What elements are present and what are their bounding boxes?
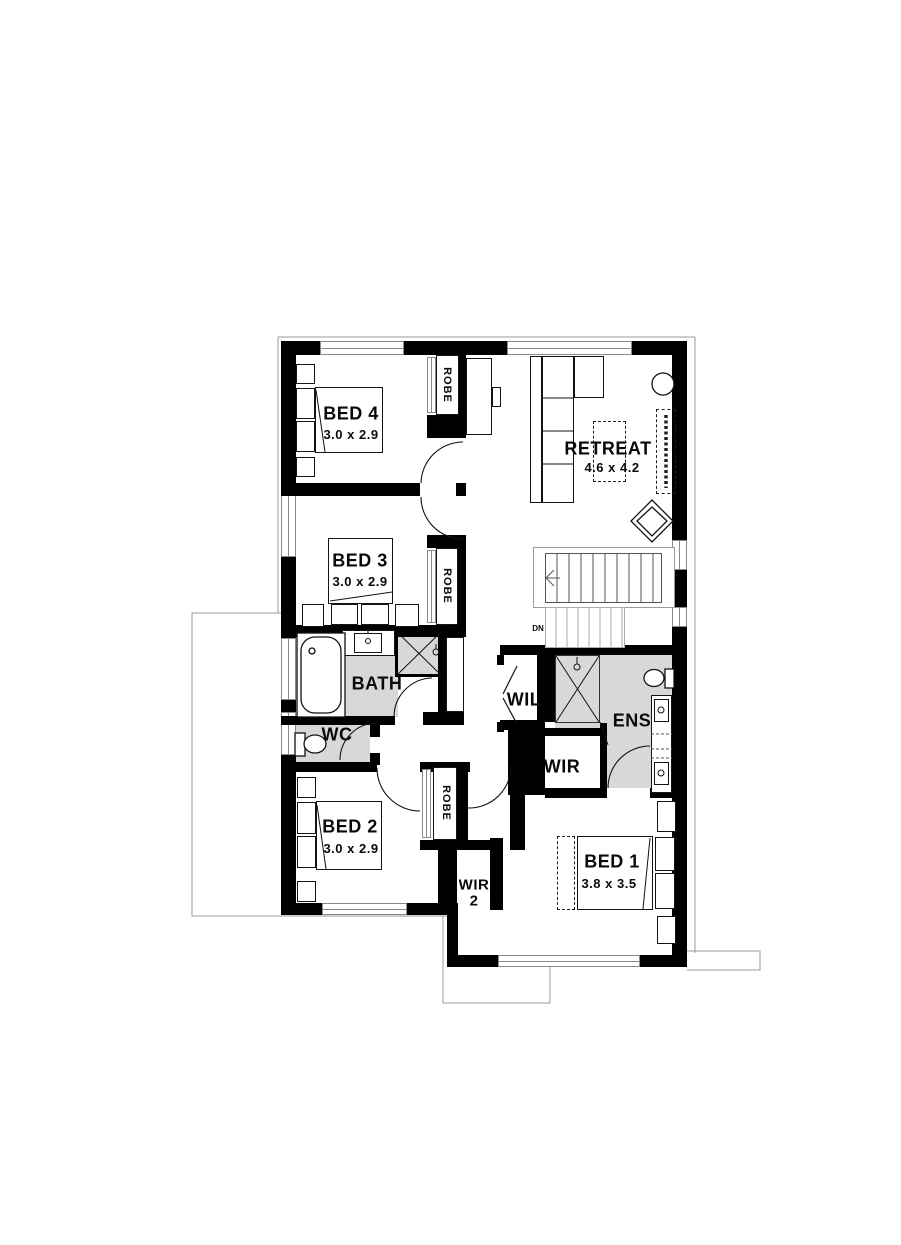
stair-flight-upper: [545, 553, 662, 603]
pillow: [296, 421, 315, 452]
door-arc-bed1: [468, 766, 511, 808]
robe-label-bed4: ROBE: [440, 367, 452, 403]
wir2-number: 2: [470, 892, 479, 909]
wir2-name: WIR: [459, 876, 490, 893]
door-arc-bed4: [421, 442, 463, 483]
linen-cupboard: [446, 637, 464, 712]
pillow: [331, 604, 358, 625]
window: [498, 955, 640, 967]
door-arc-bed3: [421, 497, 463, 539]
bed1-mattress: [577, 836, 653, 910]
wall: [281, 341, 296, 492]
door-arc-bed2: [377, 768, 420, 811]
robe-label-bed2: ROBE: [439, 785, 451, 821]
floor-plan: BED 4 3.0 x 2.9 BED 3 3.0 x 2.9 BED 2 3.…: [0, 0, 901, 1245]
wall: [497, 655, 504, 665]
bed2-dims: 3.0 x 2.9: [323, 842, 378, 856]
wall: [404, 341, 507, 355]
wall: [457, 762, 468, 842]
bed3-mattress: [328, 538, 393, 604]
wir2-label: WIR2: [459, 877, 490, 909]
pillow: [655, 873, 675, 909]
ens-label: ENS: [613, 712, 652, 731]
window: [320, 341, 404, 355]
wc-label: WC: [322, 726, 353, 745]
ens-basin: [654, 762, 669, 785]
pillow: [297, 802, 316, 834]
wall: [281, 755, 296, 905]
wall: [545, 728, 602, 736]
bed1-side-unit: [557, 836, 575, 910]
ens-basin: [654, 699, 669, 722]
bath-label: BATH: [352, 675, 403, 694]
bed4-dims: 3.0 x 2.9: [323, 428, 378, 442]
bedside-table: [297, 881, 316, 902]
wall: [438, 637, 446, 717]
side-table-icon: [652, 373, 674, 395]
wall: [438, 850, 457, 905]
wall: [281, 700, 296, 712]
bath-basin: [354, 633, 382, 653]
bed1-label: BED 1: [584, 853, 640, 872]
wall: [458, 341, 466, 438]
bed3-dims: 3.0 x 2.9: [332, 575, 387, 589]
wall: [458, 548, 466, 625]
desk: [466, 358, 492, 435]
window: [672, 607, 687, 627]
bedside-table: [657, 801, 676, 832]
wall: [456, 483, 466, 496]
ens-shower: [555, 655, 600, 723]
bed4-label: BED 4: [323, 405, 379, 424]
window: [281, 492, 296, 557]
bedside-table: [296, 364, 315, 384]
pillow: [297, 836, 316, 868]
wall: [490, 838, 503, 910]
bed2-label: BED 2: [322, 818, 378, 837]
wall: [427, 415, 459, 438]
bedside-table: [657, 916, 676, 944]
robe-sliding-door: [422, 769, 431, 838]
pillow: [296, 388, 315, 419]
sofa-seat: [542, 356, 574, 503]
window: [322, 903, 407, 915]
wir-label: WIR: [544, 758, 581, 777]
bed3-label: BED 3: [332, 552, 388, 571]
pillow: [361, 604, 389, 625]
tv-unit: [656, 409, 676, 494]
robe-sliding-door: [427, 357, 436, 413]
wall: [510, 755, 525, 850]
bedside-table: [302, 604, 324, 627]
stair-flight-lower: [545, 607, 625, 648]
pillow: [655, 837, 675, 871]
wall: [427, 535, 466, 548]
wall: [370, 725, 380, 737]
chair-icon: [631, 500, 673, 542]
sofa-arm: [574, 356, 604, 398]
retreat-label: RETREAT: [564, 440, 651, 459]
wall: [537, 652, 555, 722]
wall: [458, 955, 498, 967]
window: [281, 638, 296, 700]
bath-shower: [395, 630, 443, 677]
bed1-dims: 3.8 x 3.5: [581, 877, 636, 891]
wall: [600, 723, 607, 788]
wall: [281, 903, 322, 915]
wall: [447, 903, 458, 967]
bedside-table: [296, 457, 315, 477]
wall: [281, 483, 420, 496]
robe-sliding-door: [427, 550, 436, 623]
wall: [423, 712, 464, 725]
window: [507, 341, 632, 355]
desk-chair: [492, 387, 501, 407]
stairs-down-label: DN: [532, 625, 544, 633]
lower-roof-outline: [687, 951, 760, 970]
sofa-back: [530, 356, 542, 503]
wil-label: WIL: [507, 691, 542, 710]
bedside-table: [395, 604, 419, 627]
bedside-table: [297, 777, 316, 798]
wall: [545, 788, 607, 798]
robe-label-bed3: ROBE: [440, 568, 452, 604]
retreat-dims: 4.6 x 4.2: [584, 461, 639, 475]
wall: [281, 762, 377, 772]
